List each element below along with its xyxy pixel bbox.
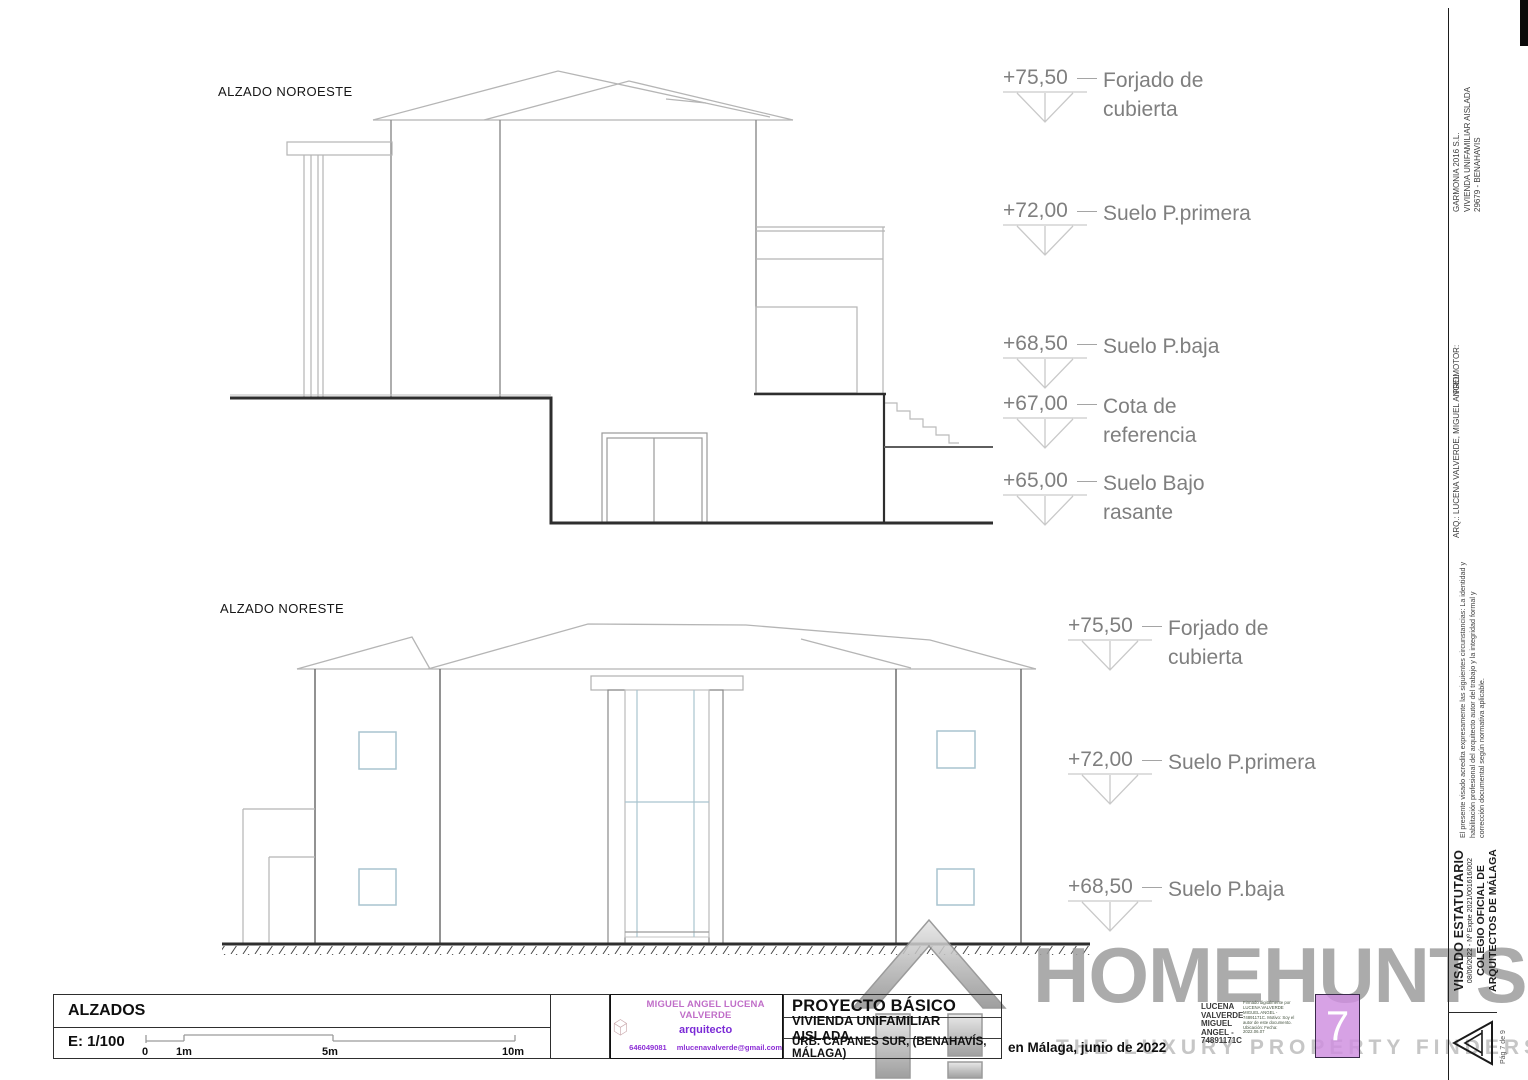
level-triangle-icon [1068, 900, 1152, 934]
sidebar-project-info: ARQ.: LUCENA VALVERDE, MIGUEL ANGEL PROM… [1452, 0, 1494, 552]
level-value: +75,50 [1003, 66, 1068, 89]
page-number: Pág 7 de 9 [1500, 1010, 1511, 1064]
project-info-cell: PROYECTO BÁSICO VIVIENDA UNIFAMILIAR AIS… [783, 994, 1002, 1059]
visado-note: El presente visado acredita expresamente… [1458, 560, 1498, 838]
bottom-elevation-title: ALZADO NORESTE [220, 601, 344, 616]
level-triangle-icon [1003, 417, 1087, 451]
leader-dash [1077, 344, 1097, 345]
scale-label: E: 1/100 [68, 1033, 125, 1050]
leader-dash [1077, 211, 1097, 212]
project-date-place: en Málaga, junio de 2022 [1008, 1040, 1166, 1055]
level-label: Forjado decubierta [1168, 614, 1268, 672]
level-label: Suelo P.baja [1168, 875, 1284, 904]
architect-contact: 646049081 mlucenavalverde@gmail.com [629, 1044, 782, 1053]
titleblock-sheet-cell: ALZADOS E: 1/100 0 1m 5m 10m [53, 994, 551, 1059]
level-triangle-icon [1068, 639, 1152, 673]
bottom-elevation-retaining-walls [243, 809, 315, 944]
architect-name: MIGUEL ANGEL LUCENA VALVERDE [629, 1000, 782, 1022]
level-triangle-icon [1003, 224, 1087, 258]
sidebar-promotor-name: GARMONIA 2016 S.L. [1452, 132, 1461, 212]
level-marker: +68,50 Suelo P.baja [1003, 332, 1068, 356]
bottom-elevation-entrance [591, 676, 743, 944]
architect-stamp-text: MIGUEL ANGEL LUCENA VALVERDE arquitecto … [629, 1000, 782, 1052]
sidebar-divider [1448, 8, 1449, 1080]
visado-block: VISADO ESTATUTARIO 08/06/2022 - Nº Expte… [1452, 833, 1500, 1008]
level-marker: +68,50 Suelo P.baja [1068, 875, 1133, 899]
page-corner-mark [1520, 0, 1528, 46]
architect-cube-icon [611, 997, 629, 1057]
level-value: +68,50 [1068, 875, 1133, 898]
drawing-sheet: ALZADO NOROESTE ALZADO NORESTE +75,50 Fo… [0, 0, 1528, 1080]
sidebar-architect: ARQ.: LUCENA VALVERDE, MIGUEL ANGEL [1452, 375, 1461, 538]
sheet-number-badge: 7 [1315, 994, 1360, 1058]
leader-dash [1142, 760, 1162, 761]
sheet-title: ALZADOS [54, 995, 550, 1028]
level-marker: +65,00 Suelo Bajorasante [1003, 469, 1068, 493]
top-elevation-stairs [884, 403, 959, 443]
level-marker: +67,00 Cota dereferencia [1003, 392, 1068, 416]
leader-dash [1142, 626, 1162, 627]
level-value: +68,50 [1003, 332, 1068, 355]
level-triangle-icon [1068, 773, 1152, 807]
digital-signature-note: Firmado digitalmente por LUCENA VALVERDE… [1243, 1001, 1297, 1035]
top-elevation-pergola [287, 142, 392, 397]
sidebar-separator [1448, 1012, 1497, 1013]
colegio-line2: ARQUITECTOS DE MÁLAGA [1487, 833, 1499, 1008]
level-triangle-icon [1003, 357, 1087, 391]
architect-role: arquitecto [629, 1024, 782, 1037]
scale-tick: 0 [142, 1046, 148, 1058]
leader-dash [1077, 78, 1097, 79]
level-marker: +75,50 Forjado decubierta [1003, 66, 1068, 90]
level-label: Suelo Bajorasante [1103, 469, 1205, 527]
sheet-number: 7 [1326, 1005, 1349, 1047]
coa-malaga-logo [1452, 1020, 1494, 1066]
scale-tick: 1m [176, 1046, 192, 1058]
top-elevation-walls [391, 120, 756, 397]
level-triangle-icon [1003, 494, 1087, 528]
level-marker: +75,50 Forjado decubierta [1068, 614, 1133, 638]
sidebar-promotor-label: PROMOTOR: [1452, 345, 1461, 394]
scale-bar [142, 1031, 522, 1047]
bottom-elevation-roof [297, 624, 1036, 669]
level-label: Suelo P.baja [1103, 332, 1219, 361]
level-value: +72,00 [1003, 199, 1068, 222]
scale-tick: 10m [502, 1046, 524, 1058]
level-marker: +72,00 Suelo P.primera [1003, 199, 1068, 223]
project-address: URB. CAPANES SUR, (BENAHAVÍS, MÁLAGA) [784, 1039, 1001, 1057]
bottom-elevation-windows [359, 731, 975, 905]
architect-email: mlucenavalverde@gmail.com [677, 1044, 782, 1053]
level-marker: +72,00 Suelo P.primera [1068, 748, 1133, 772]
top-elevation-rear-volume [756, 227, 885, 394]
architect-phone: 646049081 [629, 1044, 667, 1053]
visado-ref: 08/06/2022 - Nº Expte 2021/001616/002 [1467, 833, 1474, 1008]
level-value: +67,00 [1003, 392, 1068, 415]
level-value: +72,00 [1068, 748, 1133, 771]
bottom-elevation-walls [315, 669, 1021, 944]
top-elevation-roof [373, 71, 793, 120]
level-label: Forjado decubierta [1103, 66, 1203, 124]
top-elevation-title: ALZADO NOROESTE [218, 84, 353, 99]
scale-tick: 5m [322, 1046, 338, 1058]
visado-title: VISADO ESTATUTARIO [1452, 833, 1466, 1008]
level-label: Suelo P.primera [1168, 748, 1316, 777]
architect-stamp: MIGUEL ANGEL LUCENA VALVERDE arquitecto … [610, 994, 783, 1059]
elevation-linework [0, 0, 1100, 980]
colegio-line1: COLEGIO OFICIAL DE [1475, 833, 1487, 1008]
level-triangle-icon [1003, 91, 1087, 125]
leader-dash [1142, 887, 1162, 888]
top-elevation-basement-door [602, 433, 707, 523]
digital-signature-name: LUCENA VALVERDE MIGUEL ANGEL - 74891171C [1201, 1003, 1243, 1046]
scale-row: E: 1/100 0 1m 5m 10m [54, 1028, 550, 1059]
level-value: +75,50 [1068, 614, 1133, 637]
sidebar-promotor-line3: 29679 - BENAHAVIS [1473, 137, 1482, 212]
leader-dash [1077, 404, 1097, 405]
top-elevation-ground-line [230, 394, 993, 523]
level-label: Cota dereferencia [1103, 392, 1196, 450]
level-label: Suelo P.primera [1103, 199, 1251, 228]
sidebar-promotor-line2: VIVIENDA UNIFAMILIAR AISLADA [1463, 87, 1472, 212]
leader-dash [1077, 481, 1097, 482]
titleblock-empty-cell [551, 994, 610, 1059]
level-value: +65,00 [1003, 469, 1068, 492]
